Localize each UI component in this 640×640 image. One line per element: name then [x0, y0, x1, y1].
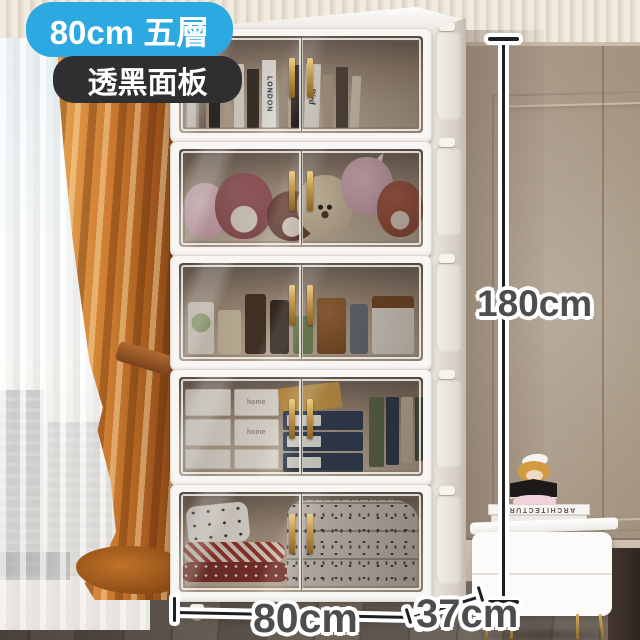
drawer-seam — [472, 573, 612, 575]
door-handle-icon — [289, 58, 295, 98]
unit-2-interior — [179, 149, 423, 247]
glass-door-left — [181, 265, 303, 359]
width-dimension-label: 80cm — [253, 595, 358, 640]
glass-door-right — [299, 38, 421, 131]
glass-door-right — [299, 151, 421, 245]
glass-door-right — [299, 494, 421, 590]
nightstand-leg — [576, 614, 579, 639]
reading-girl-figurine — [506, 454, 562, 510]
side-recess — [435, 262, 461, 352]
door-seam — [301, 379, 302, 474]
door-handle-icon — [307, 58, 313, 98]
glass-door-right — [299, 265, 421, 359]
storage-unit-5 — [170, 484, 432, 602]
door-handle-icon — [307, 285, 313, 325]
height-dimension-label: 180cm — [477, 283, 592, 325]
unit-4-interior: home home — [179, 377, 423, 476]
side-section — [430, 364, 466, 480]
door-handle-icon — [307, 399, 313, 439]
cabinet-side-panel — [430, 16, 466, 608]
glass-door-left — [181, 494, 303, 590]
latch-clip — [439, 138, 455, 147]
side-section — [430, 480, 466, 596]
glass-door-left — [181, 151, 303, 245]
latch-clip — [439, 254, 455, 263]
latch-clip — [439, 486, 455, 495]
orange-accent — [524, 576, 558, 614]
height-line-top-cap — [488, 37, 519, 41]
door-handle-icon — [289, 399, 295, 439]
door-seam — [301, 38, 302, 131]
door-handle-icon — [289, 171, 295, 211]
depth-dimension-label: 37cm — [416, 592, 518, 637]
storage-unit-3 — [170, 255, 432, 371]
side-recess — [435, 30, 461, 120]
side-section — [430, 132, 466, 248]
unit-3-interior — [179, 263, 423, 361]
size-badge: 80cm 五層 — [26, 2, 233, 57]
door-seam — [301, 494, 302, 590]
width-line-left-tick — [173, 597, 176, 622]
glass-door-left — [181, 379, 303, 474]
side-recess — [435, 494, 461, 584]
door-seam — [301, 265, 302, 359]
panel-badge: 透黑面板 — [53, 56, 242, 103]
orange-accent — [472, 534, 490, 572]
orange-accent — [524, 534, 558, 572]
unit-5-interior — [179, 492, 423, 592]
orange-accent — [592, 576, 612, 614]
door-handle-icon — [289, 514, 295, 554]
side-section — [430, 248, 466, 364]
latch-clip — [439, 370, 455, 379]
side-recess — [435, 378, 461, 468]
orange-accent — [592, 534, 612, 572]
storage-unit-2 — [170, 141, 432, 257]
product-photo: LONDON Bird — [0, 0, 640, 640]
storage-unit-4: home home — [170, 369, 432, 486]
side-section — [430, 16, 466, 132]
side-recess — [435, 146, 461, 236]
door-seam — [301, 151, 302, 245]
door-handle-icon — [307, 171, 313, 211]
door-handle-icon — [289, 285, 295, 325]
glass-door-right — [299, 379, 421, 474]
door-handle-icon — [307, 514, 313, 554]
